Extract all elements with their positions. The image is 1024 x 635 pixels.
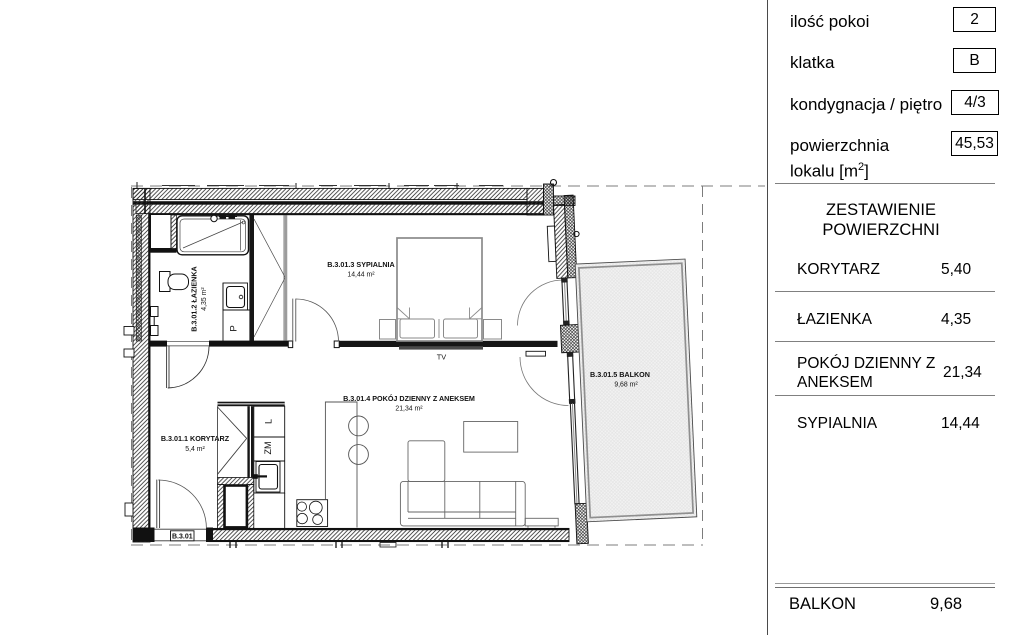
svg-text:B.3.01.1 KORYTARZ: B.3.01.1 KORYTARZ [161,434,230,443]
svg-text:B.3.01.5 BALKON: B.3.01.5 BALKON [590,370,650,379]
svg-text:TV: TV [437,352,447,361]
svg-text:B.3.01.3 SYPIALNIA: B.3.01.3 SYPIALNIA [327,260,395,269]
svg-text:B.3.01.2 ŁAZIENKA: B.3.01.2 ŁAZIENKA [189,266,198,332]
svg-text:21,34 m²: 21,34 m² [395,406,423,413]
svg-text:9,68 m²: 9,68 m² [614,382,638,389]
svg-text:B.3.01.4 POKÓJ DZIENNY Z ANEKS: B.3.01.4 POKÓJ DZIENNY Z ANEKSEM [343,394,475,403]
svg-text:14,44 m²: 14,44 m² [347,272,375,279]
svg-text:B.3.01: B.3.01 [172,534,193,541]
svg-text:ZM: ZM [263,442,273,455]
svg-text:5,4 m²: 5,4 m² [185,446,205,453]
svg-text:L: L [263,419,273,424]
svg-text:P: P [229,325,240,331]
svg-text:4,35 m²: 4,35 m² [201,287,208,311]
